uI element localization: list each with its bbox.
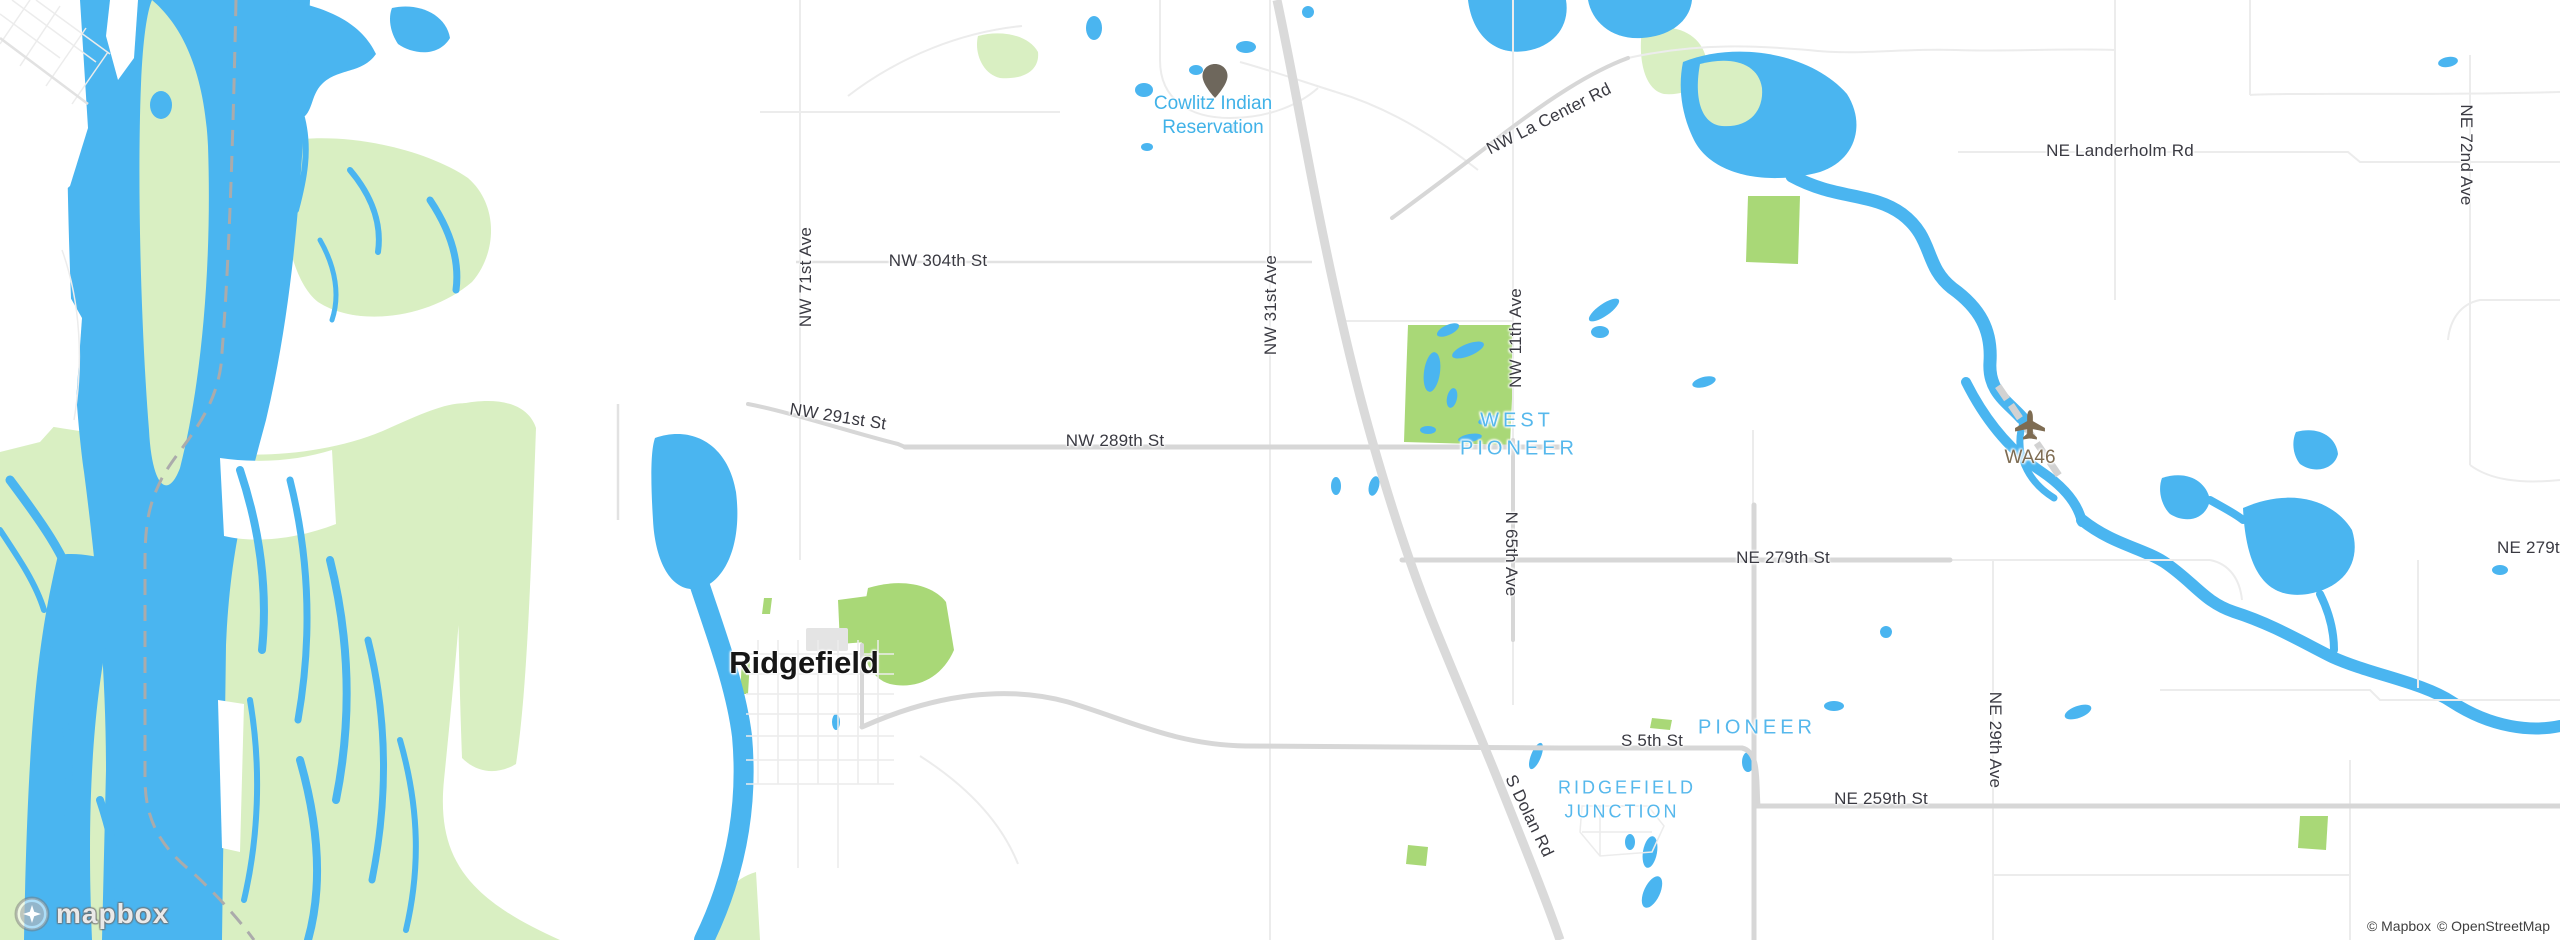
- road-label-nw-11th-ave: NW 11th Ave: [1506, 288, 1526, 388]
- map-viewport[interactable]: Ridgefield Cowlitz Indian Reservation NW…: [0, 0, 2560, 940]
- island-pond-layer: [150, 91, 172, 119]
- reservation-label-line1: Cowlitz Indian: [1154, 93, 1272, 115]
- road-label-ne-72nd-ave: NE 72nd Ave: [2456, 104, 2476, 205]
- mapbox-logo-icon: [14, 896, 50, 932]
- neighborhood-label-junction-line1: RIDGEFIELD: [1558, 778, 1696, 799]
- road-label-nw-289th-st: NW 289th St: [1066, 431, 1165, 451]
- mapbox-logo-text: mapbox: [56, 898, 169, 930]
- road-label-ne-landerholm-rd: NE Landerholm Rd: [2046, 141, 2194, 161]
- road-label-ne-259th-st: NE 259th St: [1834, 789, 1928, 809]
- city-label-ridgefield: Ridgefield: [729, 645, 879, 681]
- road-label-s-5th-st: S 5th St: [1621, 731, 1683, 751]
- attribution-mapbox-link[interactable]: © Mapbox: [2367, 918, 2431, 934]
- road-label-ne-29th-ave: NE 29th Ave: [1985, 692, 2005, 788]
- road-label-ne-279th-st-east: NE 279th St: [2497, 538, 2560, 558]
- reservation-label-line2: Reservation: [1162, 117, 1263, 139]
- neighborhood-label-pioneer: PIONEER: [1698, 717, 1816, 740]
- road-label-n-65th-ave: N 65th Ave: [1501, 512, 1521, 597]
- road-label-nw-304th-st: NW 304th St: [889, 251, 988, 271]
- mapbox-logo[interactable]: mapbox: [14, 896, 169, 932]
- airport-label-wa46: WA46: [2004, 447, 2055, 469]
- neighborhood-label-west-pioneer-line2: PIONEER: [1460, 438, 1578, 461]
- road-label-ne-279th-st: NE 279th St: [1736, 548, 1830, 568]
- attribution-osm-link[interactable]: © OpenStreetMap: [2437, 918, 2550, 934]
- attribution-bar: © Mapbox © OpenStreetMap: [2357, 912, 2560, 940]
- neighborhood-label-west-pioneer-line1: WEST: [1480, 410, 1554, 433]
- neighborhood-label-junction-line2: JUNCTION: [1565, 802, 1680, 823]
- road-label-nw-31st-ave: NW 31st Ave: [1261, 255, 1281, 355]
- road-label-nw-71st-ave: NW 71st Ave: [796, 227, 816, 327]
